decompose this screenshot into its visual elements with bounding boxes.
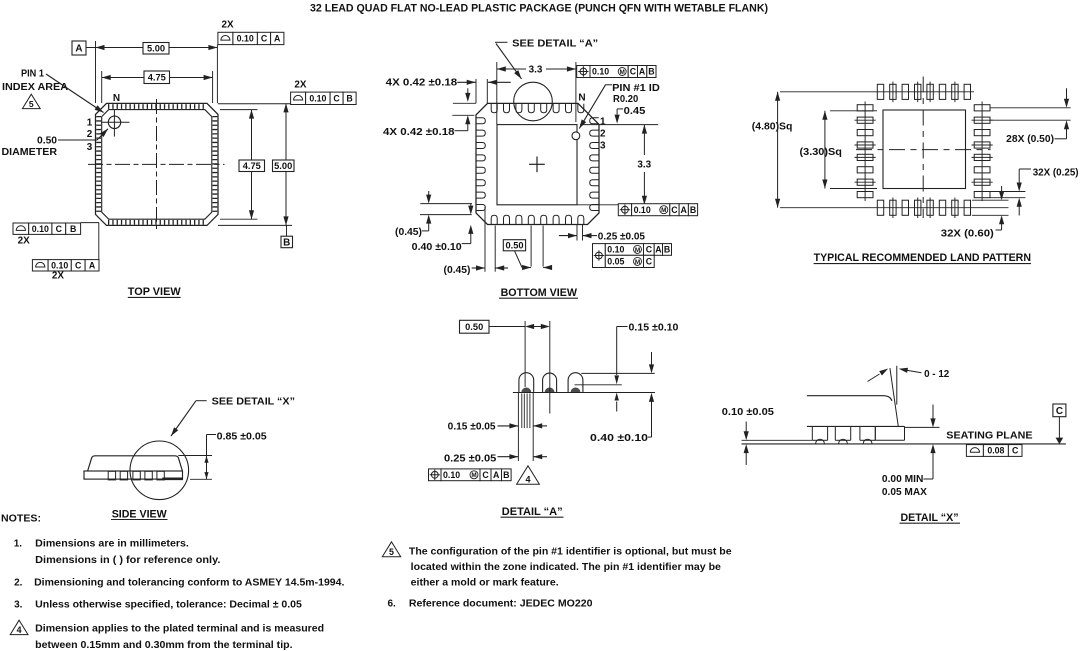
svg-text:0.10: 0.10 [237,34,254,44]
svg-text:4: 4 [17,625,22,635]
svg-text:4X 0.42 ±0.18: 4X 0.42 ±0.18 [386,77,458,88]
svg-text:C: C [671,205,678,215]
svg-text:DIAMETER: DIAMETER [2,147,57,158]
svg-text:BOTTOM VIEW: BOTTOM VIEW [501,287,578,299]
svg-text:M: M [471,472,476,479]
svg-text:5.00: 5.00 [274,161,292,171]
svg-text:Unless otherwise specified, to: Unless otherwise specified, tolerance: D… [35,599,302,610]
svg-text:0.00 MIN: 0.00 MIN [882,474,924,485]
svg-text:5.00: 5.00 [147,44,165,54]
svg-text:28X (0.50): 28X (0.50) [1006,134,1054,145]
svg-text:B: B [690,205,696,215]
svg-text:0.50: 0.50 [37,136,58,147]
svg-text:M: M [661,207,666,214]
svg-text:0.08: 0.08 [987,446,1004,456]
svg-text:C: C [56,224,63,234]
svg-text:B: B [648,67,654,77]
svg-text:0.45: 0.45 [624,106,646,117]
svg-text:4.75: 4.75 [243,161,261,171]
svg-text:A: A [655,245,662,255]
svg-text:Dimensioning and tolerancing c: Dimensioning and tolerancing conform to … [34,577,345,588]
svg-text:0.10 ±0.05: 0.10 ±0.05 [722,407,775,418]
svg-text:PIN #1 ID: PIN #1 ID [612,83,660,94]
svg-text:0.50: 0.50 [505,241,523,251]
svg-text:B: B [664,245,670,255]
svg-text:0.10: 0.10 [592,67,609,77]
svg-text:(4.80)Sq: (4.80)Sq [752,121,793,132]
svg-text:M: M [635,247,640,254]
svg-text:C: C [75,261,82,271]
svg-text:B: B [503,470,509,480]
svg-text:C: C [630,67,637,77]
svg-text:C: C [482,470,489,480]
svg-text:0.25 ±0.05: 0.25 ±0.05 [444,453,497,464]
svg-text:2X: 2X [222,19,234,30]
svg-text:N: N [113,93,120,104]
svg-text:Reference document: JEDEC MO22: Reference document: JEDEC MO220 [409,598,593,609]
svg-text:0.10: 0.10 [32,224,49,234]
svg-text:2X: 2X [294,80,306,91]
svg-text:4: 4 [525,475,530,485]
svg-text:B: B [70,224,76,234]
svg-text:0.25 ±0.05: 0.25 ±0.05 [598,231,646,242]
svg-text:C: C [1012,446,1019,456]
svg-text:2: 2 [87,129,93,140]
svg-text:INDEX AREA: INDEX AREA [2,82,68,93]
svg-text:4.75: 4.75 [148,73,166,83]
svg-text:0 - 12: 0 - 12 [924,369,950,380]
svg-text:Dimensions are in millimeters.: Dimensions are in millimeters. [35,538,189,549]
svg-text:M: M [620,69,625,76]
svg-text:0.10: 0.10 [309,94,326,104]
svg-text:1: 1 [87,117,93,128]
svg-text:32X (0.25): 32X (0.25) [1033,167,1079,178]
svg-text:(3.30)Sq: (3.30)Sq [800,147,842,158]
svg-text:The configuration of the pin #: The configuration of the pin #1 identifi… [409,546,732,557]
svg-text:A: A [89,261,96,271]
svg-text:R0.20: R0.20 [613,94,639,105]
svg-text:N: N [578,92,585,103]
svg-text:SIDE VIEW: SIDE VIEW [112,508,168,520]
svg-text:(0.45): (0.45) [444,265,471,276]
svg-text:DETAIL “A”: DETAIL “A” [502,506,563,518]
svg-text:4X 0.42 ±0.18: 4X 0.42 ±0.18 [383,127,455,138]
svg-text:2: 2 [600,129,606,140]
svg-text:C: C [261,34,268,44]
svg-text:DETAIL “X”: DETAIL “X” [900,512,958,524]
svg-text:C: C [1056,406,1063,417]
svg-text:0.10: 0.10 [51,261,68,271]
svg-text:0.05: 0.05 [607,257,624,267]
svg-text:32 LEAD QUAD FLAT NO-LEAD PLAS: 32 LEAD QUAD FLAT NO-LEAD PLASTIC PACKAG… [310,2,768,14]
svg-text:1: 1 [600,117,606,128]
svg-text:M: M [635,259,640,266]
svg-text:32X (0.60): 32X (0.60) [941,228,994,239]
svg-text:0.85 ±0.05: 0.85 ±0.05 [217,431,268,442]
svg-text:0.40 ±0.10: 0.40 ±0.10 [590,433,649,444]
svg-text:2X: 2X [18,235,30,246]
svg-text:3.3: 3.3 [529,65,543,76]
svg-text:located within the zone indica: located within the zone indicated. The p… [411,562,722,573]
svg-text:A: A [75,44,82,55]
svg-text:0.10: 0.10 [634,205,651,215]
svg-text:SEE DETAIL “X”: SEE DETAIL “X” [212,397,295,408]
svg-text:C: C [333,94,340,104]
svg-text:1.: 1. [14,538,23,549]
svg-text:TOP VIEW: TOP VIEW [128,286,181,298]
svg-text:either a mold or mark feature.: either a mold or mark feature. [411,577,559,588]
svg-text:2.: 2. [14,577,23,588]
svg-text:0.40 ±0.10: 0.40 ±0.10 [412,242,463,253]
svg-text:0.10: 0.10 [607,245,624,255]
svg-text:A: A [681,205,688,215]
svg-text:B: B [346,94,352,104]
svg-text:6.: 6. [388,598,397,609]
svg-text:3: 3 [87,142,93,153]
svg-text:5: 5 [389,547,394,557]
svg-text:B: B [283,238,290,249]
svg-text:TYPICAL RECOMMENDED LAND PATTE: TYPICAL RECOMMENDED LAND PATTERN [814,252,1031,264]
svg-text:0.15 ±0.10: 0.15 ±0.10 [629,323,679,334]
svg-text:0.15 ±0.05: 0.15 ±0.05 [448,422,496,433]
svg-text:SEATING PLANE: SEATING PLANE [946,431,1033,442]
svg-text:Dimension applies to the plate: Dimension applies to the plated terminal… [35,623,324,634]
svg-text:(0.45): (0.45) [395,227,422,238]
svg-text:SEE DETAIL “A”: SEE DETAIL “A” [512,38,598,49]
svg-text:3.3: 3.3 [637,159,651,170]
svg-text:C: C [646,245,653,255]
svg-text:Dimensions in ( ) for refere: Dimensions in ( ) for reference only. [35,555,220,566]
svg-text:between 0.15mm and 0.30mm from: between 0.15mm and 0.30mm from the termi… [35,640,293,651]
svg-text:3: 3 [600,141,606,152]
svg-text:5: 5 [29,99,34,109]
svg-text:A: A [639,67,646,77]
svg-text:PIN 1: PIN 1 [21,69,44,80]
svg-text:2X: 2X [52,270,64,281]
svg-text:NOTES:: NOTES: [1,513,41,524]
svg-text:A: A [274,34,281,44]
svg-text:0.05 MAX: 0.05 MAX [882,487,927,498]
svg-text:C: C [646,257,653,267]
svg-text:0.50: 0.50 [465,322,483,332]
svg-text:A: A [493,470,500,480]
svg-text:0.10: 0.10 [443,470,460,480]
svg-text:3.: 3. [14,599,23,610]
